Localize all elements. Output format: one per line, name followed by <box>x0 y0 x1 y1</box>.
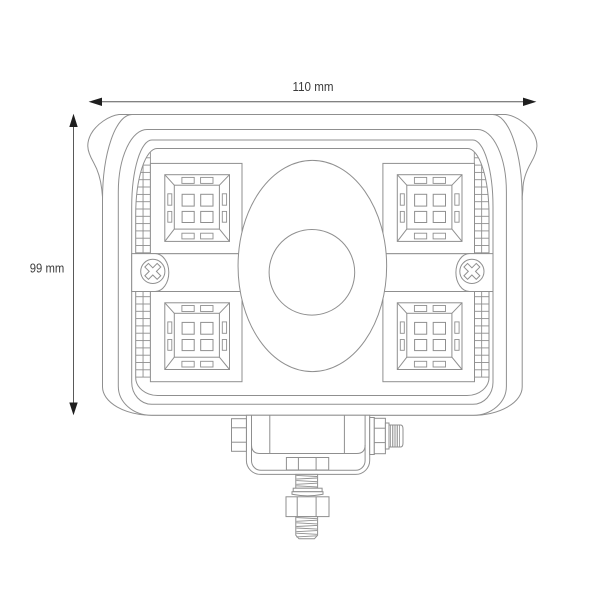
svg-text:99 mm: 99 mm <box>30 261 65 276</box>
svg-text:110 mm: 110 mm <box>293 79 334 94</box>
